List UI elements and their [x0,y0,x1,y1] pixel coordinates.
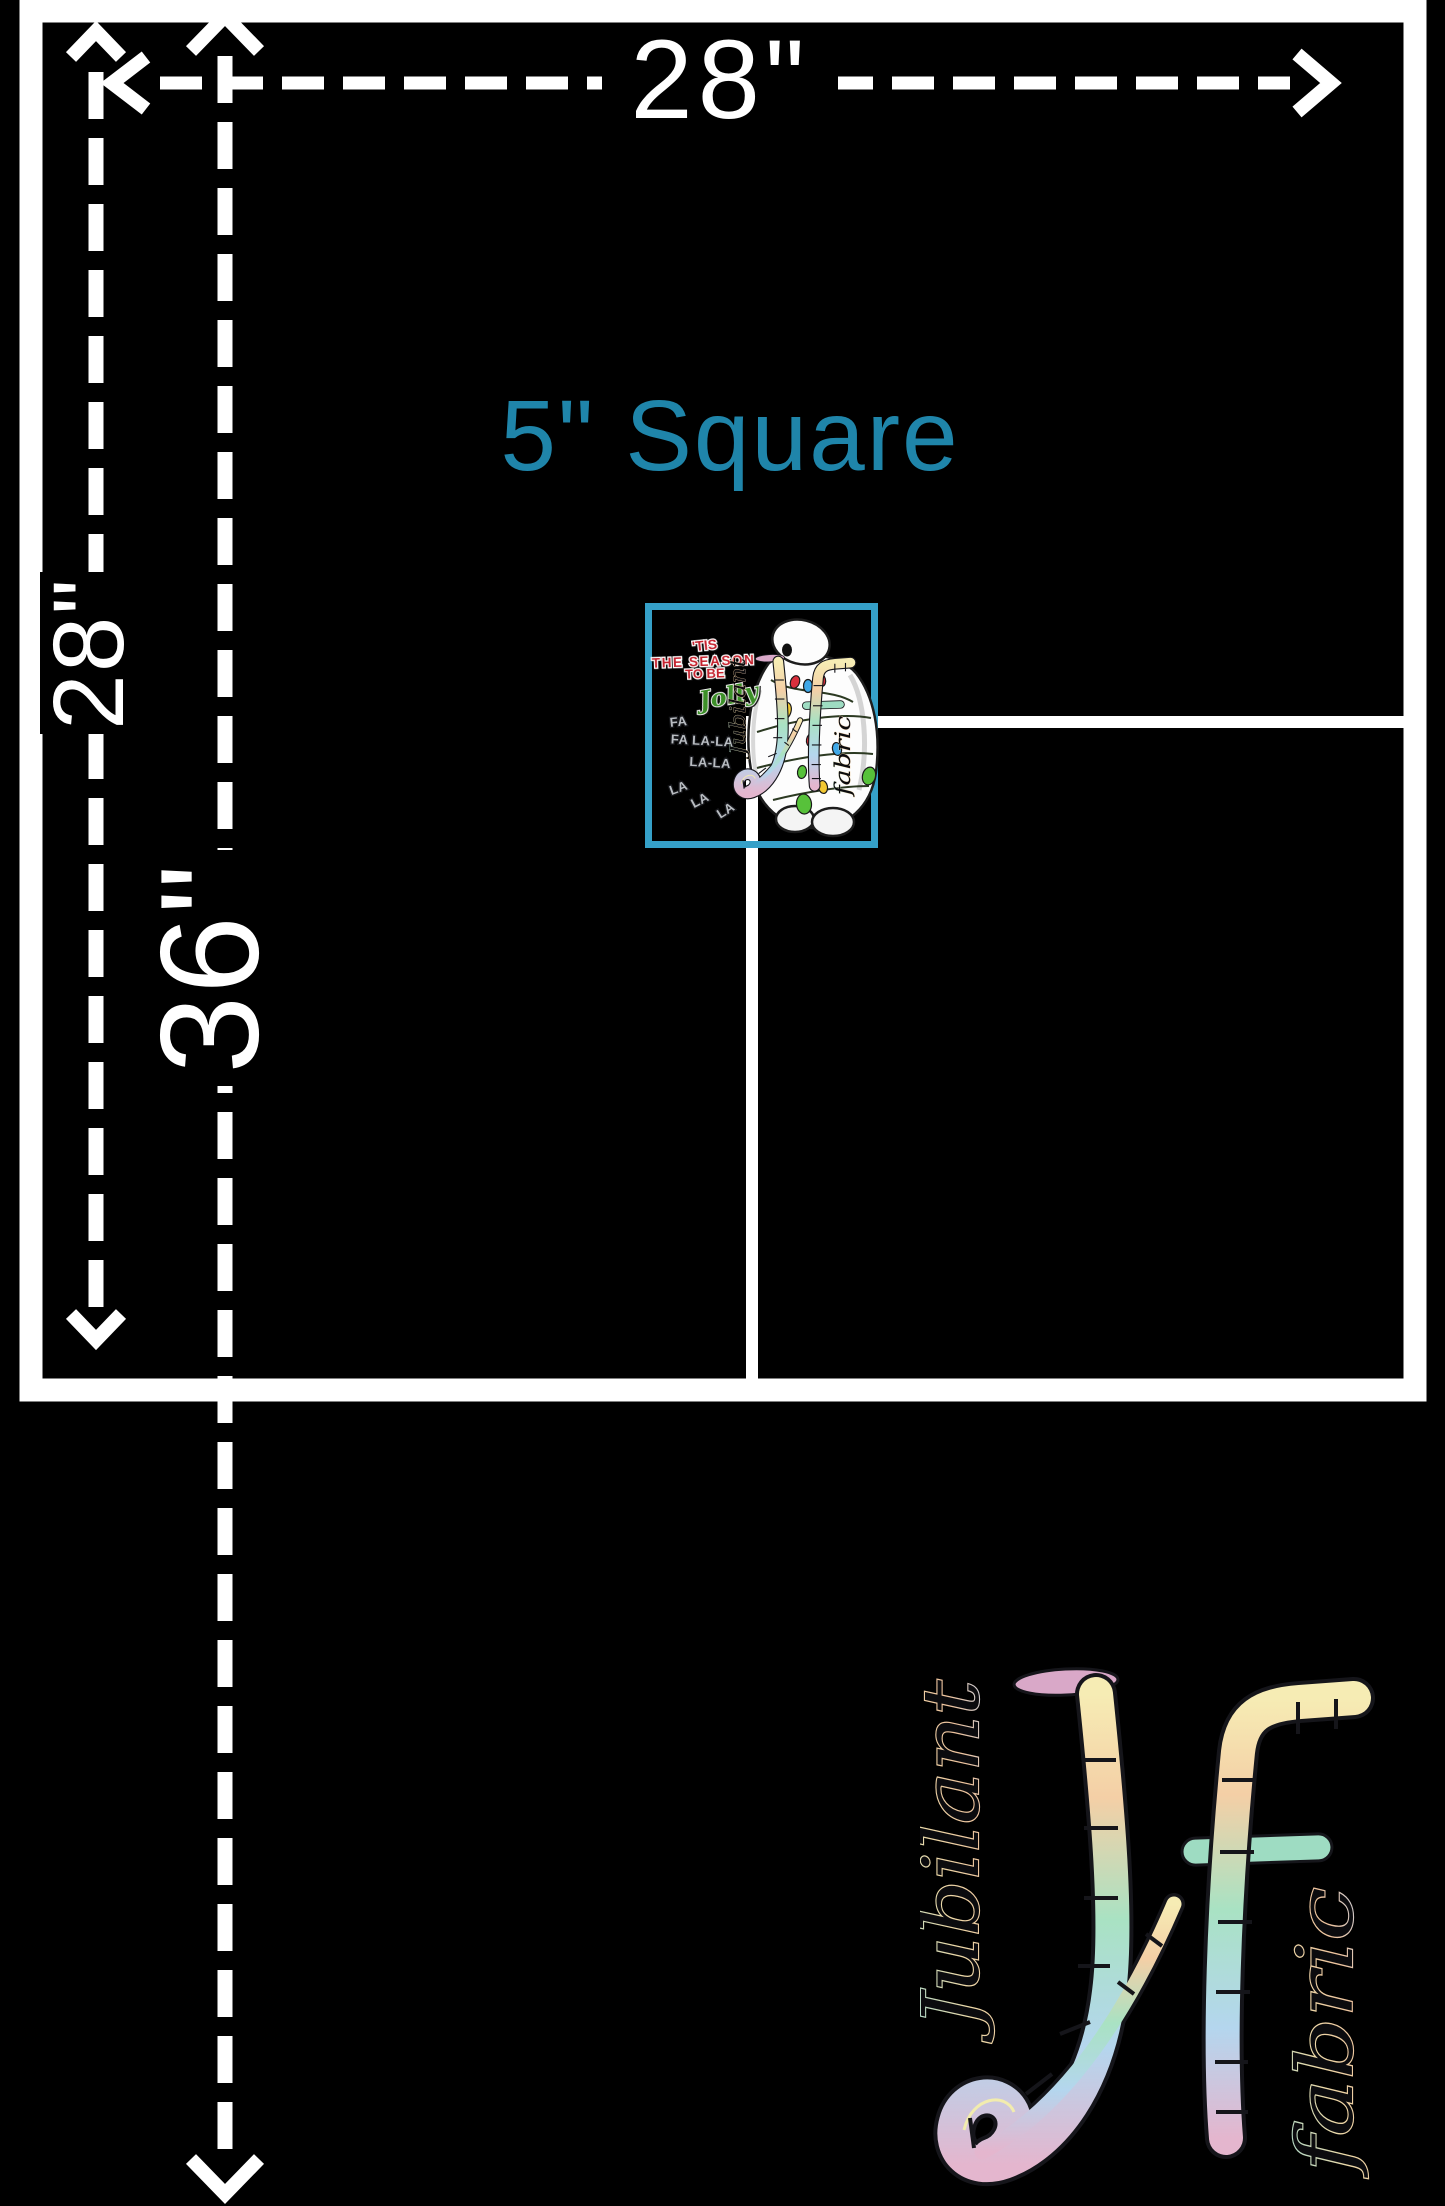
arrow-down-icon [71,1314,121,1340]
side-height-measurement-text: 28" [32,577,147,730]
square-size-text: 5" Square [500,379,959,494]
fabric-swatch: 'TIS THE SEASON TO BE Jolly FA FA LA-LA … [645,600,945,850]
arrow-right-icon [1297,54,1331,112]
print-la3: LA [688,789,711,811]
total-height-arrow [191,16,259,2194]
width-measurement-text: 28" [630,15,809,144]
fabric-size-chart-poster: 28" 28" 36" 5" Square [0,0,1445,2206]
print-fa2: FA LA-LA [671,731,735,749]
print-la4: LA [714,799,738,821]
print-tobe: TO BE [685,665,725,681]
print-la1: LA-LA [689,754,731,771]
arrow-left-icon [112,57,146,109]
total-height-measurement-text: 36" [129,862,291,1073]
print-la2: LA [667,778,689,798]
arrow-down-icon [191,2159,259,2194]
side-height-measurement-label: 28" [40,572,138,734]
baymax-eye [782,644,792,657]
square-size-title: 5" Square [430,380,1030,492]
width-measurement-label: 28" [602,26,838,132]
print-tis: 'TIS [691,636,718,655]
brand-logo-jf [920,1660,1435,2206]
total-height-measurement-label: 36" [148,850,272,1086]
print-fa1: FA [669,713,688,730]
arrow-up-icon [71,31,121,57]
swatch-design: 'TIS THE SEASON TO BE Jolly FA FA LA-LA … [645,600,945,850]
